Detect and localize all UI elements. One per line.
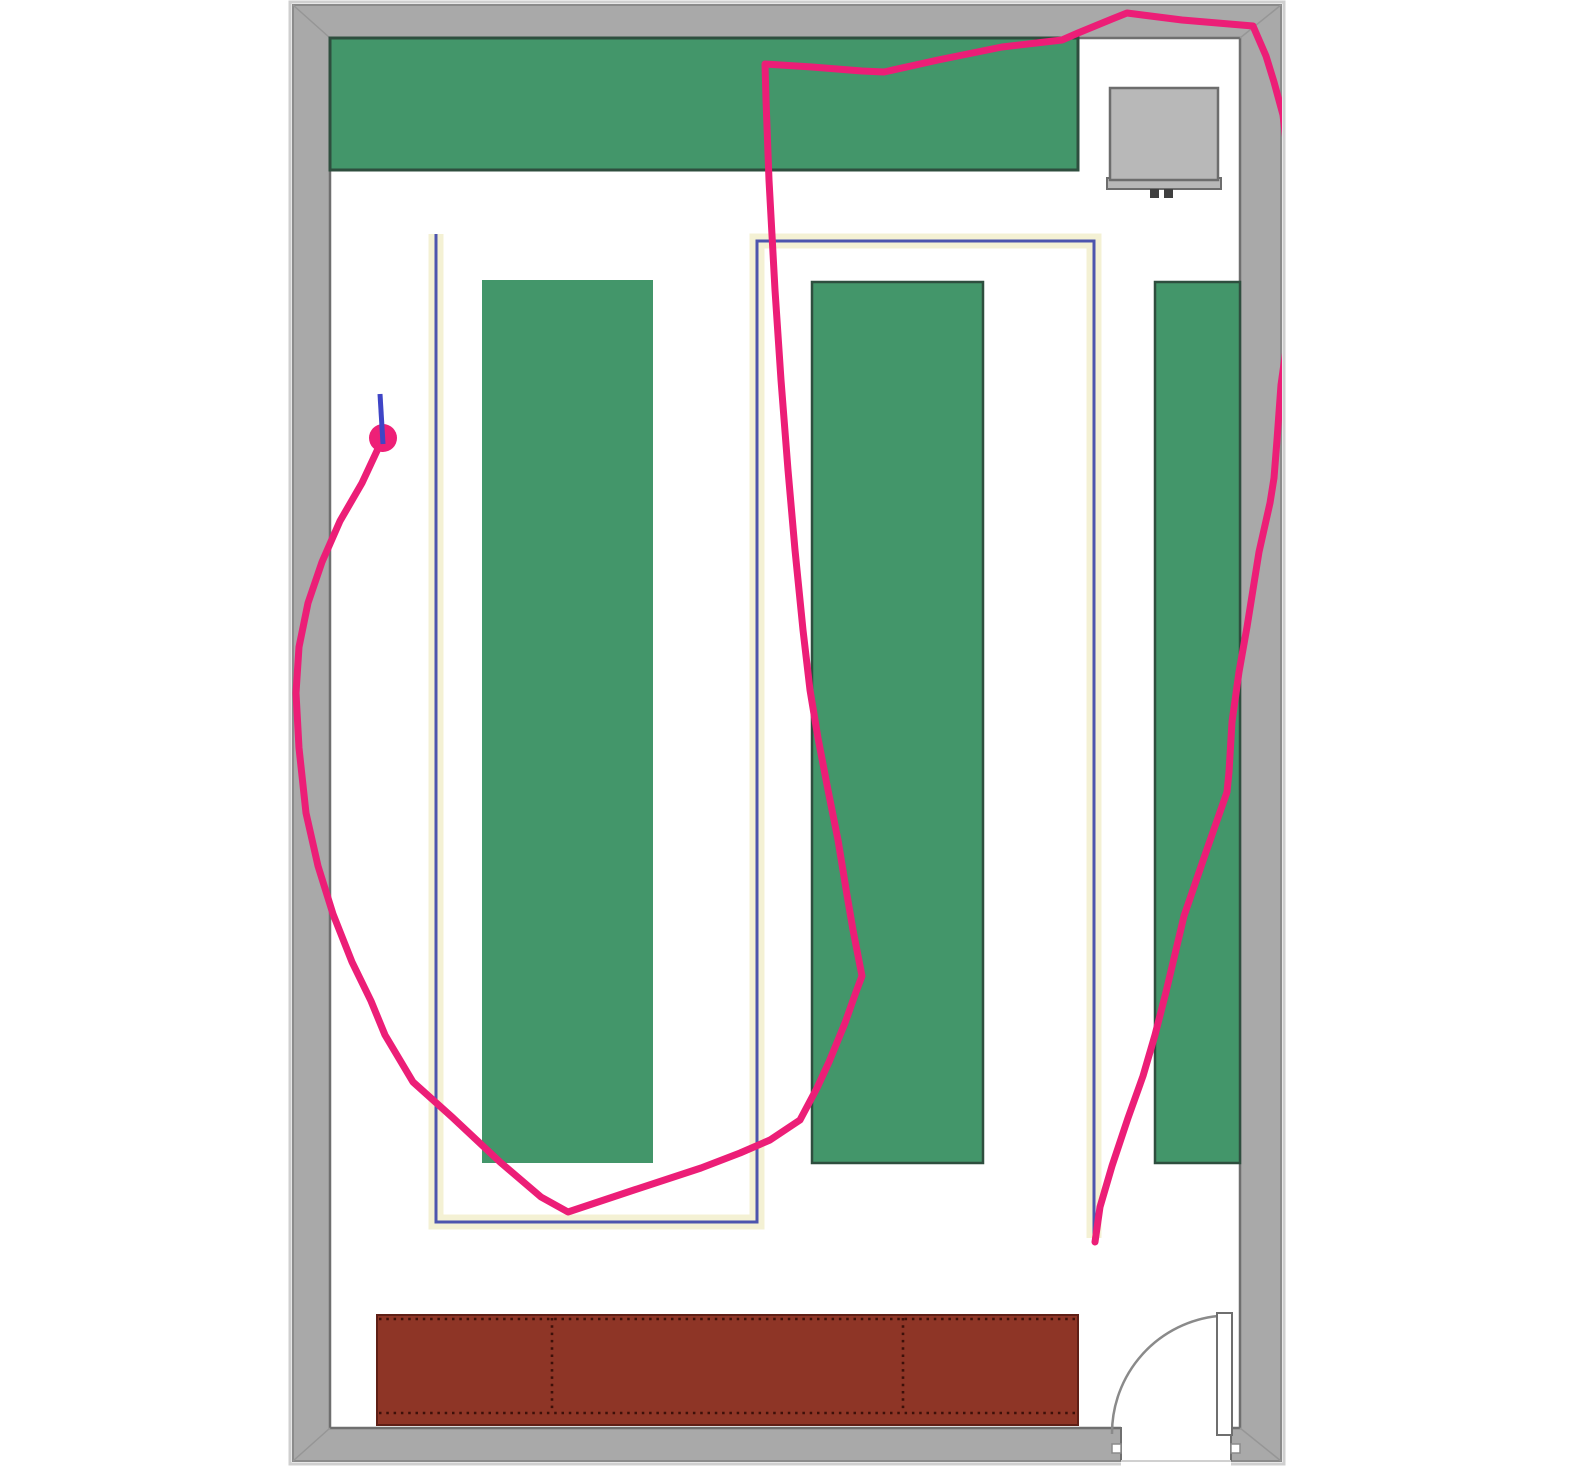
floorplan-canvas[interactable] bbox=[0, 0, 1575, 1470]
equipment-foot-left bbox=[1150, 189, 1159, 198]
equipment-box bbox=[1110, 88, 1218, 180]
shelf-column-2 bbox=[812, 282, 983, 1163]
equipment-foot-right bbox=[1164, 189, 1173, 198]
shelf-column-1 bbox=[482, 280, 653, 1163]
robot-heading bbox=[380, 394, 383, 444]
door-notch-right bbox=[1231, 1444, 1240, 1453]
door-opening bbox=[1121, 1426, 1231, 1470]
floorplan-svg[interactable] bbox=[0, 0, 1575, 1470]
door-leaf bbox=[1217, 1313, 1232, 1435]
door-notch-left bbox=[1112, 1444, 1121, 1453]
counter bbox=[377, 1315, 1078, 1425]
shelf-column-3 bbox=[1155, 282, 1240, 1163]
